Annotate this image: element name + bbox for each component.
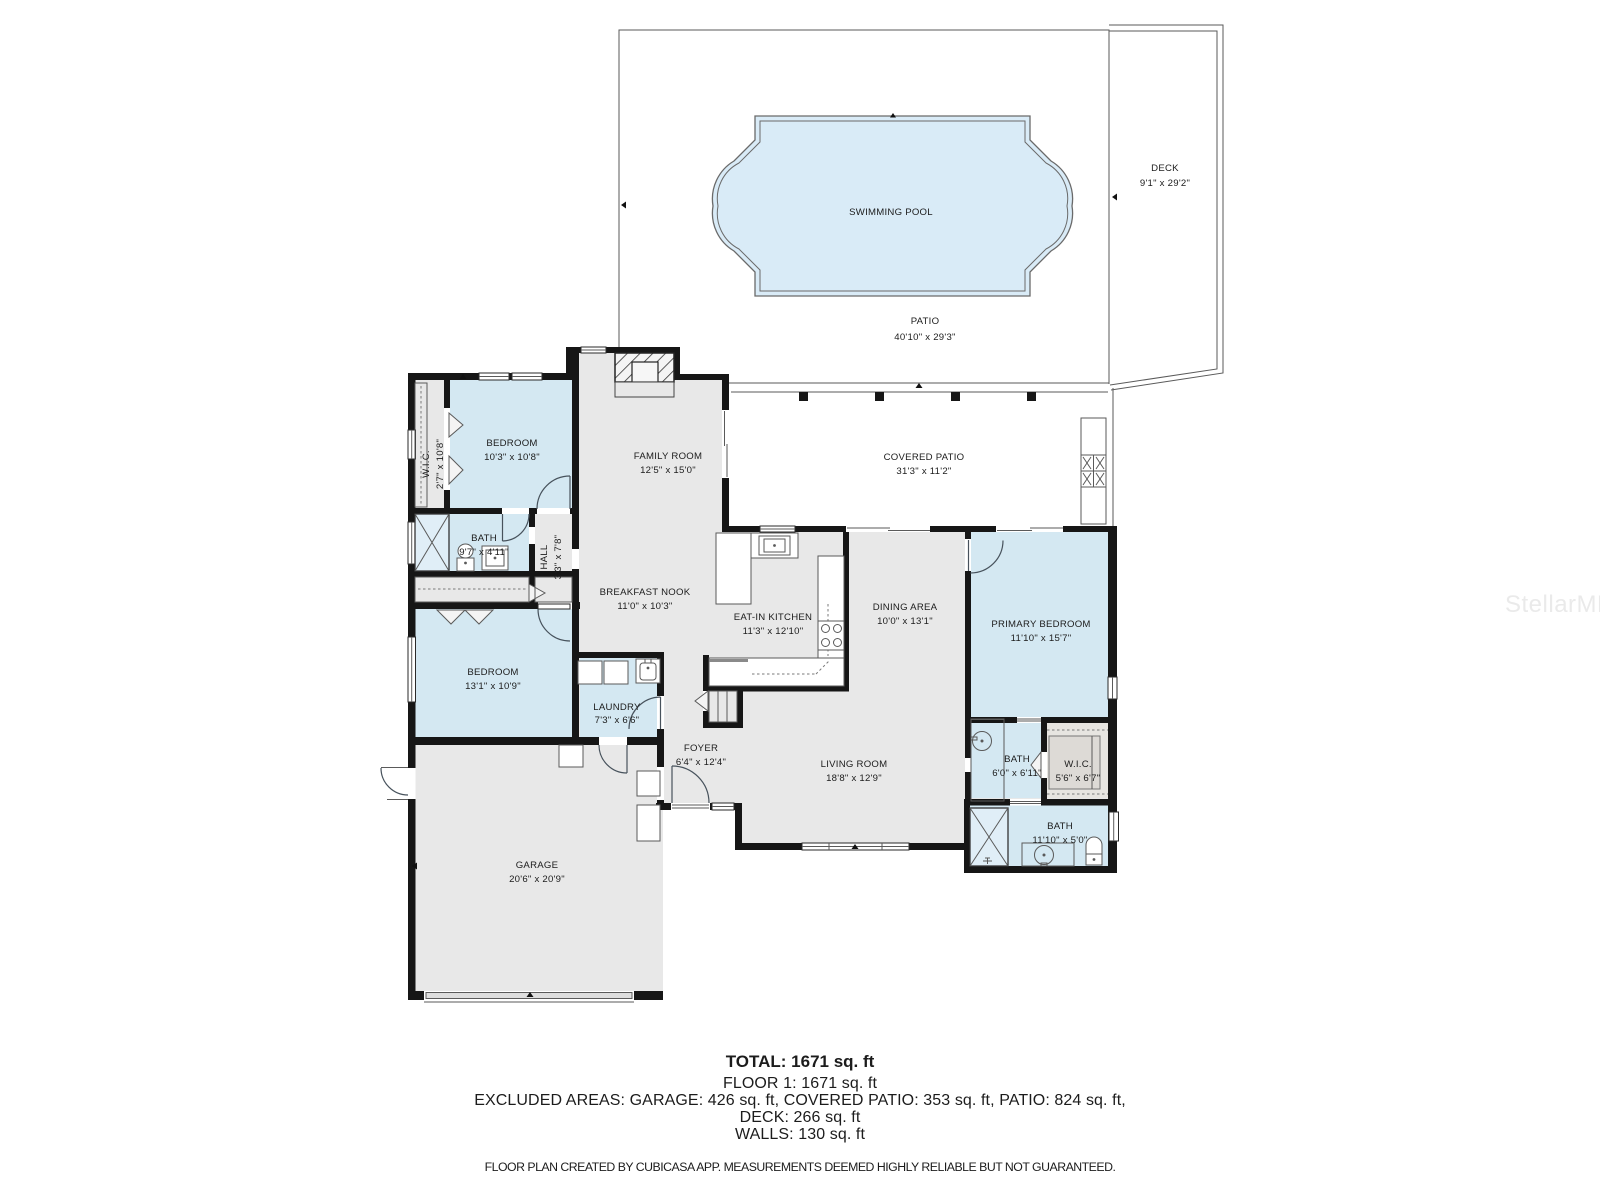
svg-text:2'7" x 10'8": 2'7" x 10'8" xyxy=(435,439,446,489)
svg-text:11'3" x 12'10": 11'3" x 12'10" xyxy=(743,626,804,637)
svg-text:TOTAL: 1671 sq. ft: TOTAL: 1671 sq. ft xyxy=(726,1052,875,1071)
svg-text:20'6" x 20'9": 20'6" x 20'9" xyxy=(509,874,565,885)
svg-text:DECK: 266 sq. ft: DECK: 266 sq. ft xyxy=(740,1109,861,1126)
svg-text:FAMILY ROOM: FAMILY ROOM xyxy=(634,451,703,462)
svg-text:10'0" x 13'1": 10'0" x 13'1" xyxy=(877,616,933,627)
svg-text:W.I.C.: W.I.C. xyxy=(421,450,432,478)
svg-text:3'3" x 7'8": 3'3" x 7'8" xyxy=(553,535,564,580)
svg-text:DINING AREA: DINING AREA xyxy=(873,602,938,613)
svg-text:PATIO: PATIO xyxy=(911,316,940,327)
svg-text:6'0" x 6'11": 6'0" x 6'11" xyxy=(992,768,1042,779)
svg-text:BATH: BATH xyxy=(1047,821,1073,832)
svg-text:PRIMARY BEDROOM: PRIMARY BEDROOM xyxy=(991,619,1090,630)
svg-text:GARAGE: GARAGE xyxy=(516,860,559,871)
svg-text:LAUNDRY: LAUNDRY xyxy=(593,702,641,713)
svg-text:5'6" x 6'7": 5'6" x 6'7" xyxy=(1056,773,1101,784)
svg-text:LIVING ROOM: LIVING ROOM xyxy=(821,759,888,770)
svg-text:11'10" x 5'0": 11'10" x 5'0" xyxy=(1032,835,1087,846)
svg-text:BATH: BATH xyxy=(471,533,497,544)
svg-text:9'1" x 29'2": 9'1" x 29'2" xyxy=(1140,178,1190,189)
svg-text:12'5" x 15'0": 12'5" x 15'0" xyxy=(640,465,696,476)
svg-text:StellarMLS: StellarMLS xyxy=(1505,591,1600,618)
svg-text:6'4" x 12'4": 6'4" x 12'4" xyxy=(676,757,726,768)
svg-text:DECK: DECK xyxy=(1151,163,1179,174)
svg-text:13'1" x 10'9": 13'1" x 10'9" xyxy=(465,681,521,692)
svg-text:COVERED PATIO: COVERED PATIO xyxy=(884,452,965,463)
svg-text:BEDROOM: BEDROOM xyxy=(486,438,537,449)
svg-text:7'3" x 6'6": 7'3" x 6'6" xyxy=(595,715,640,726)
svg-text:FOYER: FOYER xyxy=(684,743,718,754)
svg-text:31'3" x 11'2": 31'3" x 11'2" xyxy=(896,466,951,477)
svg-text:40'10" x 29'3": 40'10" x 29'3" xyxy=(894,332,955,343)
svg-text:18'8" x 12'9": 18'8" x 12'9" xyxy=(826,773,882,784)
svg-text:FLOOR 1: 1671 sq. ft: FLOOR 1: 1671 sq. ft xyxy=(723,1075,878,1092)
svg-text:EAT-IN KITCHEN: EAT-IN KITCHEN xyxy=(734,612,812,623)
svg-text:BEDROOM: BEDROOM xyxy=(467,667,518,678)
svg-text:11'10" x 15'7": 11'10" x 15'7" xyxy=(1011,633,1072,644)
svg-text:FLOOR PLAN CREATED BY CUBICASA: FLOOR PLAN CREATED BY CUBICASA APP. MEAS… xyxy=(485,1160,1116,1174)
svg-text:SWIMMING POOL: SWIMMING POOL xyxy=(849,207,933,218)
svg-text:W.I.C.: W.I.C. xyxy=(1064,759,1092,770)
svg-text:WALLS: 130 sq. ft: WALLS: 130 sq. ft xyxy=(735,1126,866,1143)
svg-text:HALL: HALL xyxy=(539,544,550,569)
svg-text:10'3" x 10'8": 10'3" x 10'8" xyxy=(484,452,540,463)
svg-text:9'7" x 4'11": 9'7" x 4'11" xyxy=(459,547,509,558)
svg-text:BATH: BATH xyxy=(1004,754,1030,765)
svg-text:EXCLUDED AREAS: GARAGE: 426 sq: EXCLUDED AREAS: GARAGE: 426 sq. ft, COVE… xyxy=(474,1092,1126,1109)
svg-text:11'0" x 10'3": 11'0" x 10'3" xyxy=(617,601,672,612)
svg-text:BREAKFAST NOOK: BREAKFAST NOOK xyxy=(600,587,691,598)
